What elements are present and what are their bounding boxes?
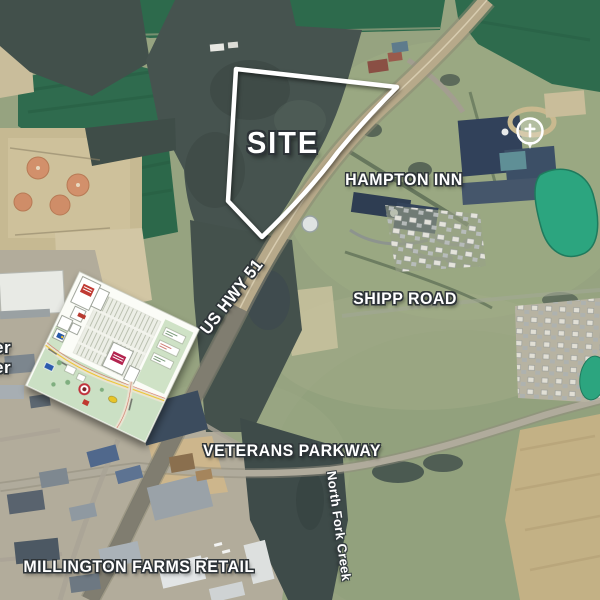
warehouse-west (0, 270, 65, 319)
clipped-label-line2: er (0, 358, 11, 378)
veterans-parkway-label: VETERANS PARKWAY (203, 441, 381, 461)
site-label: SITE (247, 125, 319, 161)
millington-farms-retail-label: MILLINGTON FARMS RETAIL (23, 557, 254, 577)
shipp-road-label: SHIPP ROAD (353, 289, 457, 309)
water-tower (302, 216, 318, 232)
clipped-label-line1: er (0, 338, 11, 358)
hampton-inn-label: HAMPTON INN (345, 170, 463, 190)
satellite-map-image (0, 0, 600, 600)
map-screenshot: SITE HAMPTON INN SHIPP ROAD US HWY 51 VE… (0, 0, 600, 600)
subdivision-houses (385, 205, 486, 272)
